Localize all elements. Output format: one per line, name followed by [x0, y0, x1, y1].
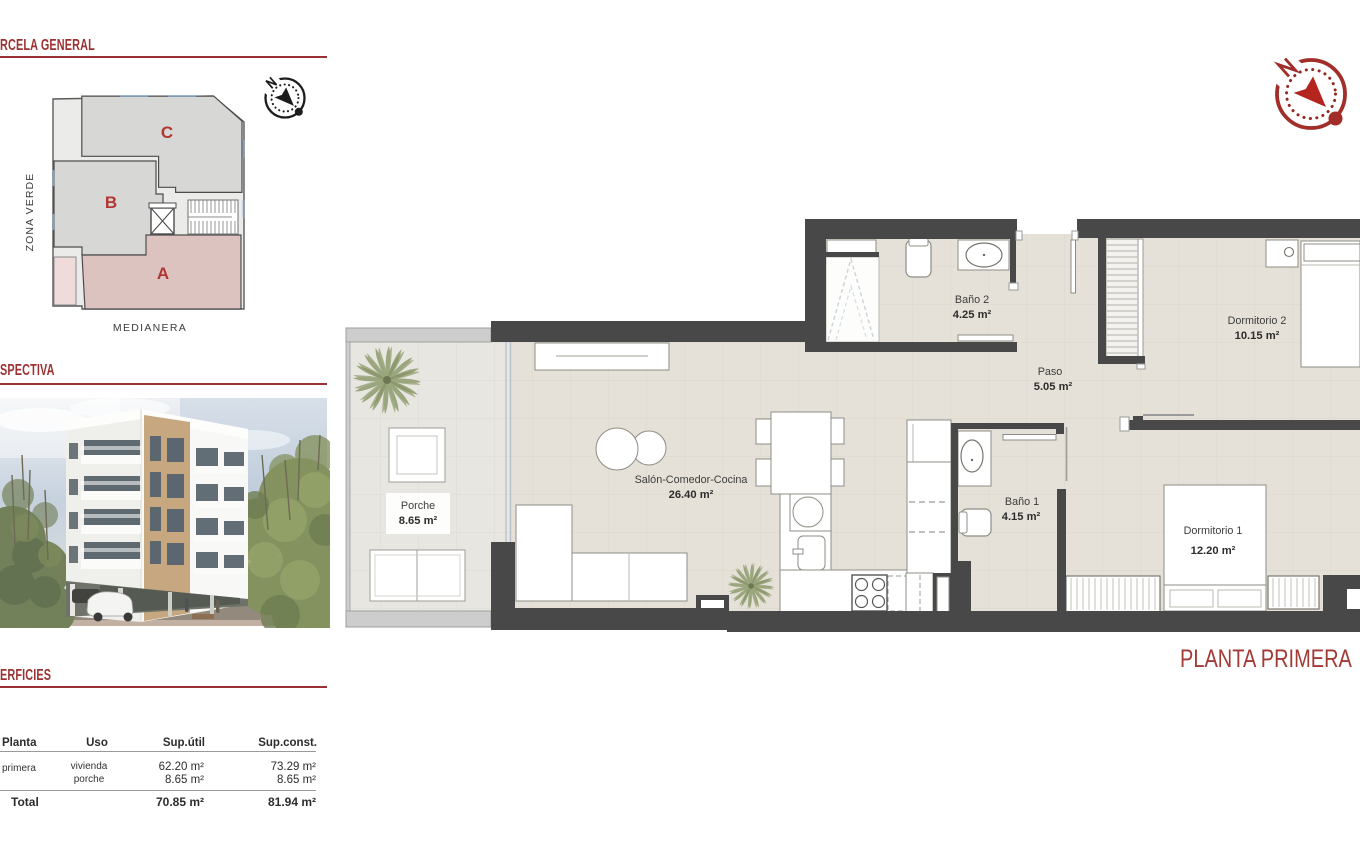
svg-text:5.05 m²: 5.05 m²	[1034, 381, 1073, 393]
svg-text:Baño 2: Baño 2	[955, 294, 989, 306]
svg-text:C: C	[161, 123, 173, 142]
svg-text:12.20 m²: 12.20 m²	[1191, 545, 1236, 557]
svg-text:4.25 m²: 4.25 m²	[953, 309, 992, 321]
svg-text:Dormitorio 2: Dormitorio 2	[1228, 315, 1287, 327]
svg-text:4.15 m²: 4.15 m²	[1002, 511, 1041, 523]
svg-text:A: A	[157, 264, 169, 283]
svg-text:Paso: Paso	[1038, 366, 1063, 378]
svg-text:ZONA VERDE: ZONA VERDE	[24, 173, 36, 252]
svg-text:Porche: Porche	[401, 500, 435, 512]
svg-text:Salón-Comedor-Cocina: Salón-Comedor-Cocina	[635, 474, 748, 486]
svg-text:26.40 m²: 26.40 m²	[669, 489, 714, 501]
svg-text:Baño 1: Baño 1	[1005, 496, 1039, 508]
svg-text:B: B	[105, 193, 117, 212]
svg-text:MEDIANERA: MEDIANERA	[113, 322, 187, 334]
svg-text:10.15 m²: 10.15 m²	[1235, 330, 1280, 342]
svg-text:8.65 m²: 8.65 m²	[399, 515, 438, 527]
svg-text:Dormitorio 1: Dormitorio 1	[1184, 525, 1243, 537]
